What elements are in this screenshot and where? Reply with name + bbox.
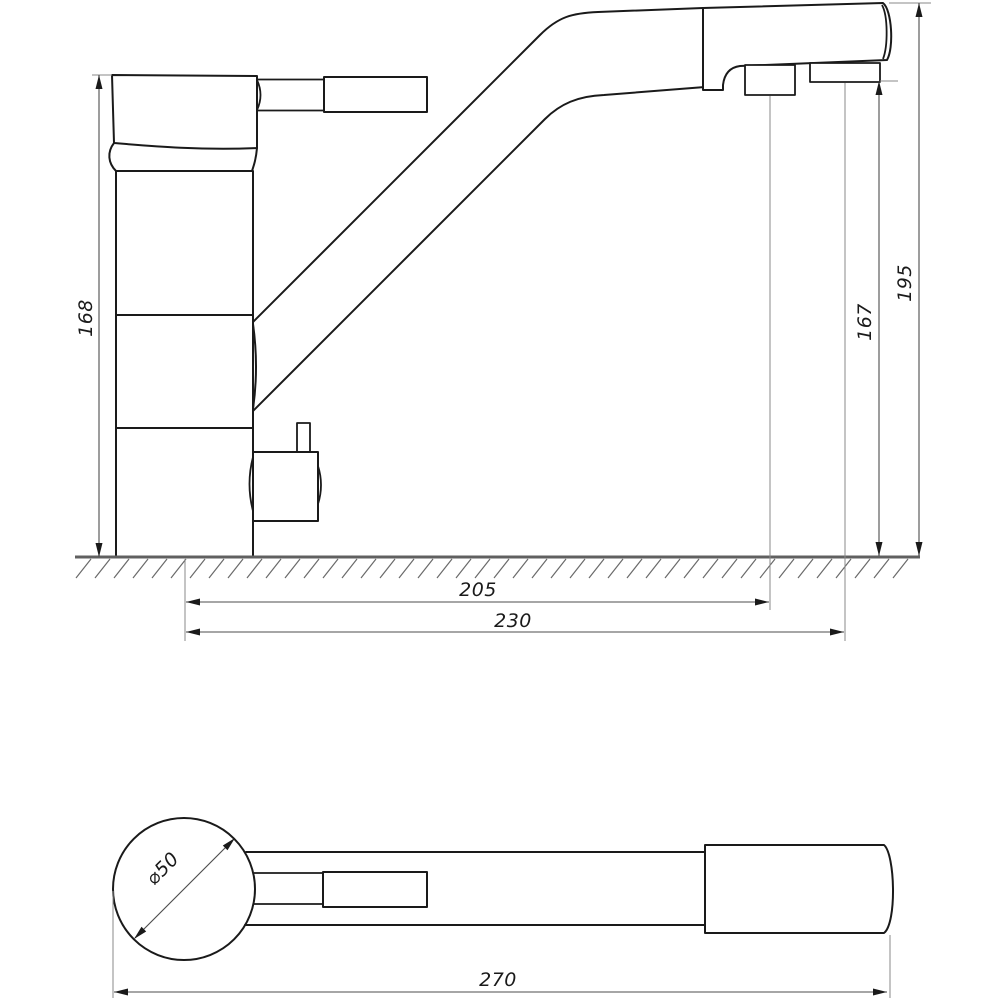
body-neck-left-edge — [109, 143, 116, 171]
dimension-aerator-reach: 205 — [186, 579, 769, 606]
spout-tube-upper-edge — [253, 8, 703, 322]
lever-cap — [112, 75, 257, 149]
aerator-nozzle — [745, 65, 795, 95]
lever-rod — [257, 80, 324, 111]
dimension-filter-reach: 230 — [186, 610, 844, 636]
top-view: ⌀50 270 — [113, 818, 893, 998]
lever-grip — [324, 77, 427, 112]
technical-drawing-page: 168 167 195 205 — [0, 0, 1000, 1000]
dim-label-total-length: 270 — [479, 969, 517, 991]
dim-label-base-diameter: ⌀50 — [142, 848, 184, 890]
body-neck-right-edge — [252, 148, 257, 171]
dim-label-filter-reach: 230 — [494, 610, 532, 632]
plan-spout-head — [705, 845, 893, 933]
ground-hatch — [76, 559, 908, 578]
dimension-body-height: 168 — [75, 75, 112, 557]
faucet-drawing-canvas: 168 167 195 205 — [0, 0, 1000, 1000]
dimension-total-height: 195 — [889, 3, 931, 556]
dim-label-spout-outlet-height: 167 — [854, 303, 876, 341]
filter-nozzle — [810, 63, 880, 82]
dimension-base-diameter: ⌀50 — [134, 838, 235, 939]
dim-label-aerator-reach: 205 — [459, 579, 497, 601]
dim-label-total-height: 195 — [894, 264, 916, 302]
filter-valve-stem — [297, 423, 310, 452]
dimension-spout-outlet-height: 167 — [854, 81, 898, 556]
dim-label-body-height: 168 — [75, 299, 97, 337]
spout-tube-lower-edge — [253, 87, 705, 411]
side-view: 168 167 195 205 — [75, 3, 931, 641]
faucet-body — [116, 171, 253, 557]
plan-lever-grip — [323, 872, 427, 907]
filter-valve-body — [253, 452, 318, 521]
